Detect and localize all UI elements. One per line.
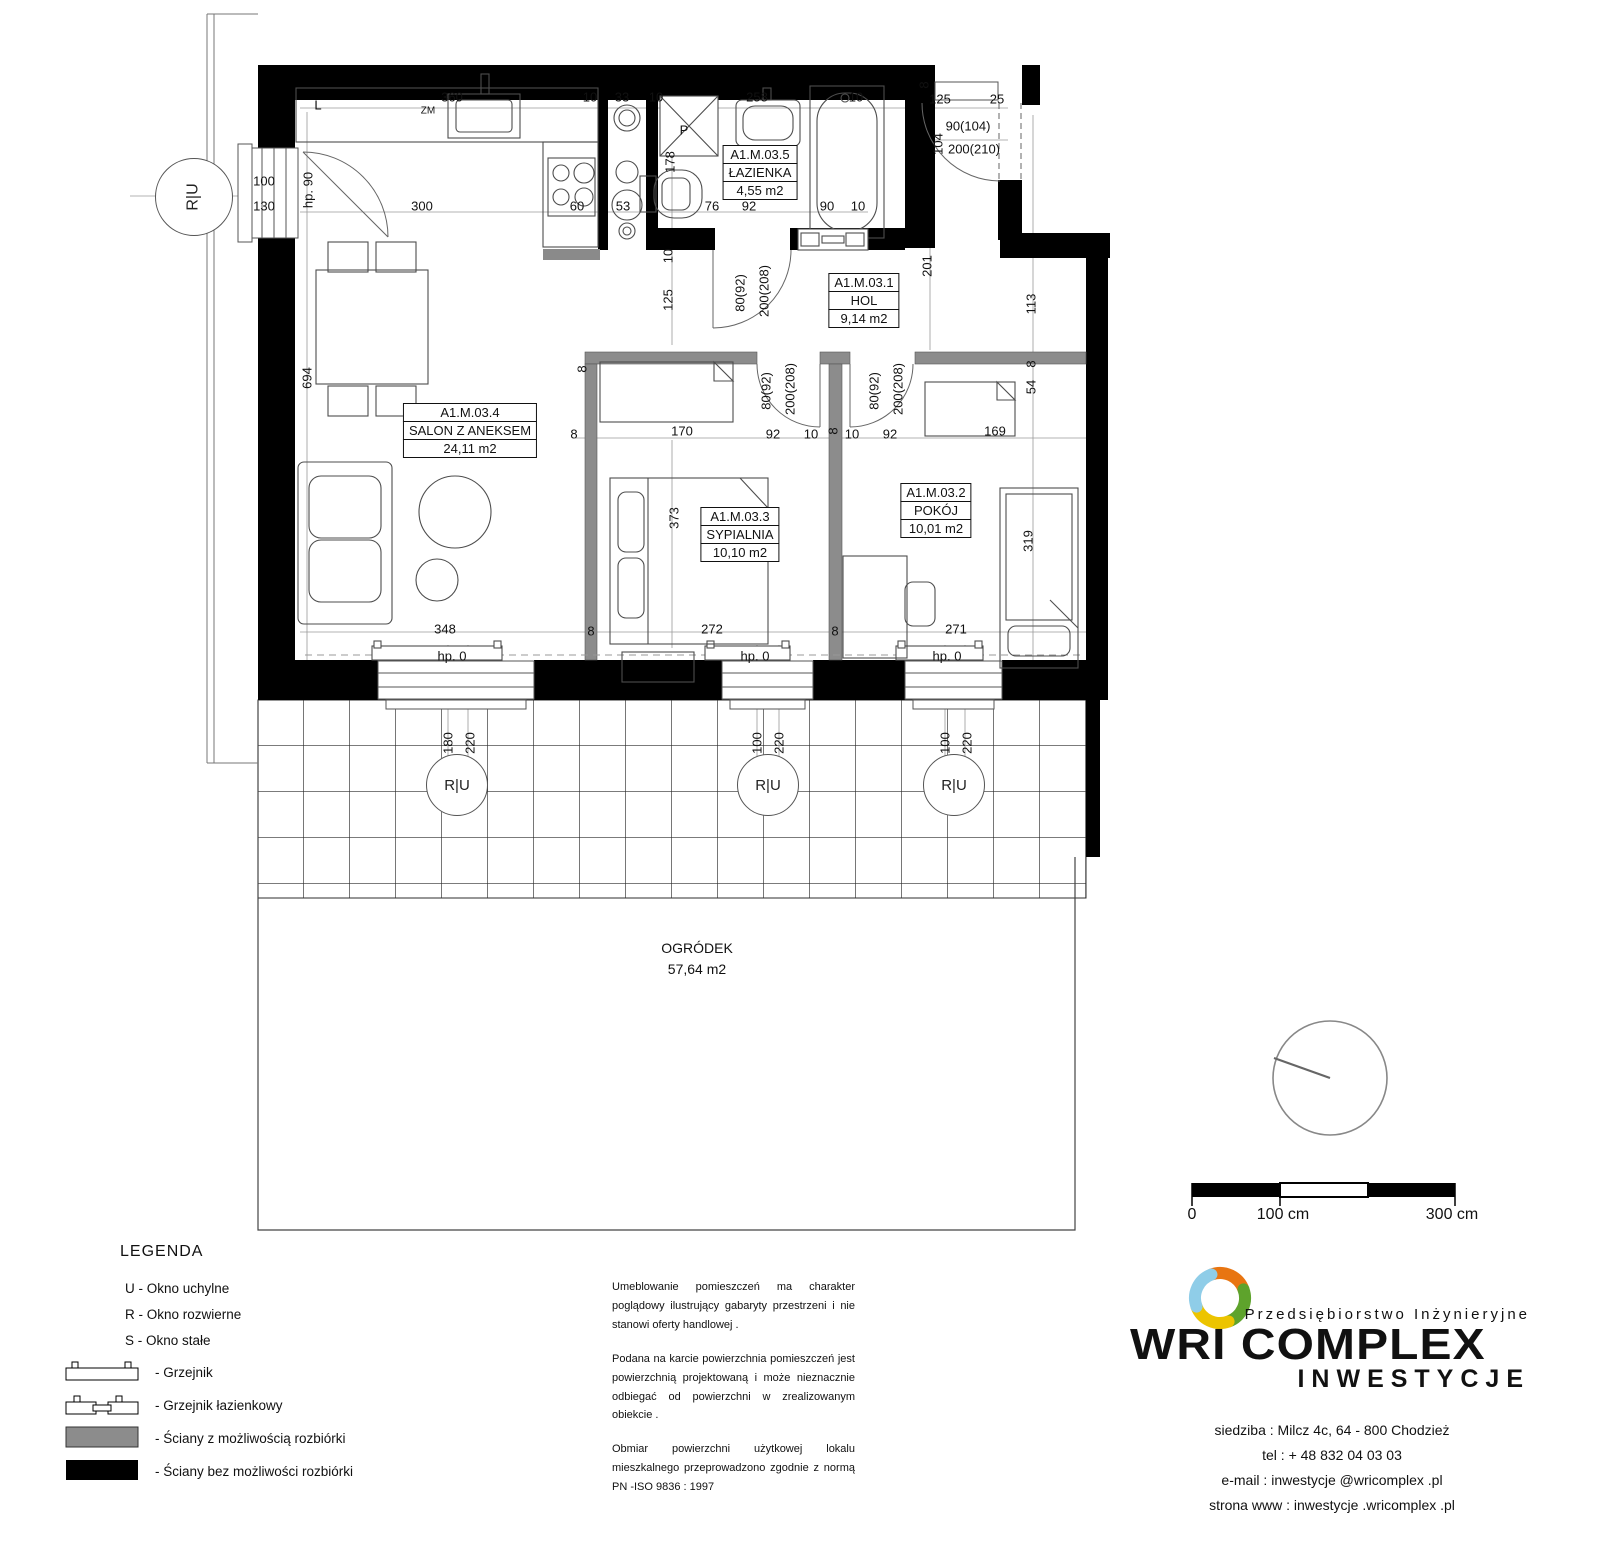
radiator-symbol xyxy=(65,1359,147,1386)
dim-label: 8 xyxy=(1024,360,1039,367)
dim-label: 10 xyxy=(845,427,859,442)
dim-label: 130 xyxy=(253,199,275,214)
plot-boundary-lines xyxy=(207,14,258,763)
dim-label: 8 xyxy=(826,427,841,434)
room-name: SYPIALNIA xyxy=(700,525,779,544)
dim-label: 80(92) xyxy=(733,274,748,312)
room-id: A1.M.03.3 xyxy=(700,507,779,526)
legend-window-types: U - Okno uchylneR - Okno rozwierneS - Ok… xyxy=(65,1281,410,1348)
dim-label: hp. 0 xyxy=(933,649,962,664)
notes-block: Umeblowanie pomieszczeń ma charakter pog… xyxy=(612,1278,855,1512)
dim-label: 220 xyxy=(772,732,787,754)
window-marker-label: R|U xyxy=(444,777,470,794)
contact-line: tel : + 48 832 04 03 03 xyxy=(1130,1443,1534,1468)
contact-line: siedziba : Milcz 4c, 64 - 800 Chodzież xyxy=(1130,1418,1534,1443)
dim-label: 220 xyxy=(960,732,975,754)
room-name: HOL xyxy=(828,291,899,310)
legend-item-label: - Ściany bez możliwości rozbiórki xyxy=(155,1464,353,1479)
window-marker: R|U xyxy=(426,754,488,816)
dim-label: P xyxy=(680,123,689,138)
legend: LEGENDA U - Okno uchylneR - Okno rozwier… xyxy=(65,1243,410,1491)
legend-symbols: - Grzejnik- Grzejnik łazienkowy- Ściany … xyxy=(65,1359,410,1485)
dim-label: 201 xyxy=(920,255,935,277)
dim-label: 92 xyxy=(766,427,780,442)
legend-item-label: - Grzejnik łazienkowy xyxy=(155,1398,283,1413)
garden-label: OGRÓDEK 57,64 m2 xyxy=(661,938,733,980)
room-name: POKÓJ xyxy=(900,501,971,520)
legend-title: LEGENDA xyxy=(120,1243,410,1261)
room-name: ŁAZIENKA xyxy=(723,163,798,182)
scale-label-start: 0 xyxy=(1188,1206,1197,1224)
dim-label: 10 xyxy=(583,90,597,105)
dim-label: 8 xyxy=(587,624,594,639)
note-paragraph: Podana na karcie powierzchnia pomieszcze… xyxy=(612,1350,855,1426)
dim-label: 125 xyxy=(929,92,951,107)
room-area: 4,55 m2 xyxy=(723,181,798,200)
room-id: A1.M.03.5 xyxy=(723,145,798,164)
window-marker: R|U xyxy=(155,158,233,236)
window-marker: R|U xyxy=(737,754,799,816)
window-marker-label: R|U xyxy=(755,777,781,794)
room-id: A1.M.03.4 xyxy=(403,403,537,422)
dim-label: 10 xyxy=(851,199,865,214)
dim-label: 170 xyxy=(671,424,693,439)
legend-window-type: U - Okno uchylne xyxy=(125,1281,410,1296)
dim-label: 100 xyxy=(253,174,275,189)
dim-label: 54 xyxy=(1024,380,1039,394)
legend-window-type: S - Okno stałe xyxy=(125,1333,410,1348)
dim-label: 92 xyxy=(742,199,756,214)
room-name: SALON Z ANEKSEM xyxy=(403,421,537,440)
scale-bar xyxy=(1192,1183,1455,1206)
window-marker-label: R|U xyxy=(941,777,967,794)
dim-label: 300 xyxy=(411,199,433,214)
legend-item-label: - Ściany z możliwością rozbiórki xyxy=(155,1431,346,1446)
note-paragraph: Umeblowanie pomieszczeń ma charakter pog… xyxy=(612,1278,855,1335)
scale-label-mid: 100 cm xyxy=(1257,1206,1309,1224)
dim-label: 76 xyxy=(705,199,719,214)
company-contact: siedziba : Milcz 4c, 64 - 800 Chodzieżte… xyxy=(1130,1418,1534,1518)
dim-label: 8 xyxy=(570,427,577,442)
note-paragraph: Obmiar powierzchni użytkowej lokalu mies… xyxy=(612,1440,855,1497)
room-area: 10,01 m2 xyxy=(900,519,971,538)
legend-item: - Ściany bez możliwości rozbiórki xyxy=(65,1458,410,1485)
dim-label: 8 xyxy=(575,365,590,372)
dim-label: 80(92) xyxy=(759,372,774,410)
company-subname: INWESTYCJE xyxy=(1297,1365,1530,1394)
legend-item: - Grzejnik xyxy=(65,1359,410,1386)
dim-label: 113 xyxy=(1024,294,1039,315)
dim-label: 90 xyxy=(820,199,834,214)
dim-label: 272 xyxy=(701,622,723,637)
dim-label: 100 xyxy=(750,732,765,754)
dim-label: L xyxy=(314,98,321,113)
radiator-bath-symbol xyxy=(65,1392,147,1419)
dim-label: 319 xyxy=(1021,530,1036,552)
room-area: 10,10 m2 xyxy=(700,543,779,562)
contact-line: strona www : inwestycje .wricomplex .pl xyxy=(1130,1493,1534,1518)
dim-label: 200(210) xyxy=(948,142,1000,157)
dim-label: 80(92) xyxy=(867,372,882,410)
room-area: 9,14 m2 xyxy=(828,309,899,328)
scale-label-end: 300 cm xyxy=(1426,1206,1478,1224)
dim-label: 169 xyxy=(984,424,1006,439)
room-label: A1.M.03.4SALON Z ANEKSEM24,11 m2 xyxy=(403,404,537,458)
dim-label: 10 xyxy=(804,427,818,442)
window-marker-label: R|U xyxy=(185,183,203,210)
garden-area: 57,64 m2 xyxy=(661,959,733,980)
contact-line: e-mail : inwestycje @wricomplex .pl xyxy=(1130,1468,1534,1493)
room-label: A1.M.03.5ŁAZIENKA4,55 m2 xyxy=(723,146,798,200)
dim-label: 271 xyxy=(945,622,967,637)
walls-removable xyxy=(585,352,1086,660)
dim-label: 60 xyxy=(570,199,584,214)
furniture xyxy=(296,74,1078,682)
dim-label: 8 xyxy=(831,624,838,639)
dim-label: hp. 0 xyxy=(741,649,770,664)
dim-label: 180 xyxy=(441,732,456,754)
legend-item-label: - Grzejnik xyxy=(155,1365,213,1380)
legend-item: - Ściany z możliwością rozbiórki xyxy=(65,1425,410,1452)
garden-name: OGRÓDEK xyxy=(661,938,733,959)
dim-label: 100 xyxy=(938,732,953,754)
room-label: A1.M.03.2POKÓJ10,01 m2 xyxy=(900,484,971,538)
room-label: A1.M.03.1HOL9,14 m2 xyxy=(828,274,899,328)
dim-label: 694 xyxy=(300,367,315,389)
company-name: WRI COMPLEX xyxy=(1130,1320,1486,1370)
compass xyxy=(1273,1021,1387,1135)
dim-label: 104 xyxy=(931,133,946,155)
wall-dot xyxy=(861,704,870,713)
dim-label: 200(208) xyxy=(757,265,772,317)
dim-label: 10 xyxy=(849,90,863,105)
dim-label: 125 xyxy=(661,289,676,311)
dim-label: 25 xyxy=(990,92,1004,107)
dim-label: hp. 90 xyxy=(301,172,316,208)
room-id: A1.M.03.1 xyxy=(828,273,899,292)
dim-label: 8 xyxy=(917,81,932,88)
dim-label: 92 xyxy=(883,427,897,442)
dim-label: 200(208) xyxy=(891,363,906,415)
dim-label: 33 xyxy=(615,90,629,105)
legend-window-type: R - Okno rozwierne xyxy=(125,1307,410,1322)
wall-gray-symbol xyxy=(65,1425,147,1452)
wall-black-symbol xyxy=(65,1458,147,1485)
legend-item: - Grzejnik łazienkowy xyxy=(65,1392,410,1419)
dim-label: 258 xyxy=(746,90,768,105)
dim-label: 348 xyxy=(434,622,456,637)
room-id: A1.M.03.2 xyxy=(900,483,971,502)
dim-label: 360 xyxy=(441,90,463,105)
dim-label: 220 xyxy=(463,732,478,754)
floor-plan-sheet: LZM3601033102581081252590(104)104200(210… xyxy=(0,0,1600,1542)
room-area: 24,11 m2 xyxy=(403,439,537,458)
dim-label: hp. 0 xyxy=(438,649,467,664)
dim-label: 53 xyxy=(616,199,630,214)
dim-label: 10 xyxy=(661,249,676,263)
dim-label: ZM xyxy=(421,106,435,117)
dim-label: 373 xyxy=(667,507,682,529)
dim-label: 10 xyxy=(649,90,663,105)
window-marker: R|U xyxy=(923,754,985,816)
dim-label: 90(104) xyxy=(946,119,991,134)
room-label: A1.M.03.3SYPIALNIA10,10 m2 xyxy=(700,508,779,562)
dim-label: 200(208) xyxy=(783,363,798,415)
dim-label: 178 xyxy=(663,151,678,173)
